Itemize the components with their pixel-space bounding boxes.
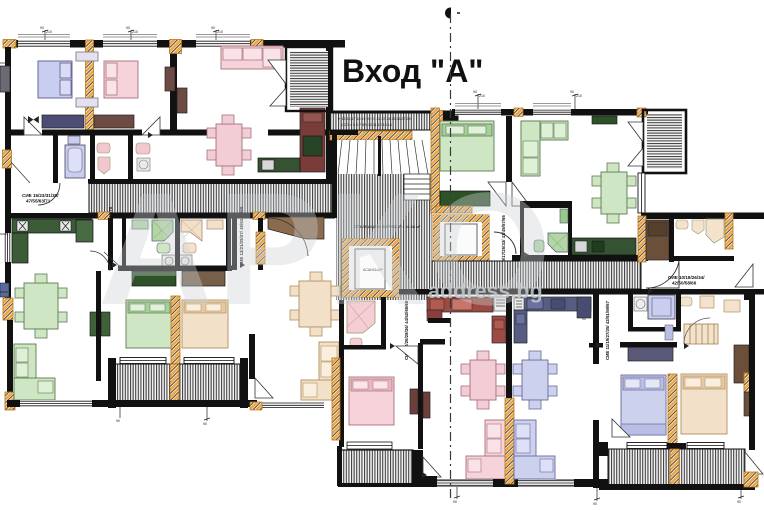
- svg-text:СИЕ 15/23/31/39/: СИЕ 15/23/31/39/: [22, 193, 59, 198]
- svg-text:90: 90: [737, 500, 741, 504]
- svg-text:address.bg: address.bg: [428, 279, 543, 303]
- svg-text:210: 210: [132, 30, 138, 34]
- svg-text:210: 210: [479, 94, 485, 98]
- svg-text:210: 210: [576, 94, 582, 98]
- svg-text:1 2 3 4 5 6 7 8 9 10 11 12 13: 1 2 3 4 5 6 7 8 9 10 11 12 13 14: [341, 123, 392, 127]
- svg-text:▼ 15 16 17 18 19 20 21 22 23 2: ▼ 15 16 17 18 19 20 21 22 23 24 25 26 27…: [337, 117, 411, 121]
- svg-text:210: 210: [217, 30, 223, 34]
- svg-text:СИЕ 10/18/26/34/: СИЕ 10/18/26/34/: [668, 275, 705, 280]
- svg-text:210: 210: [46, 30, 52, 34]
- svg-text:Вход "А": Вход "А": [342, 53, 483, 89]
- svg-text:90: 90: [593, 502, 597, 506]
- svg-text:90: 90: [211, 26, 215, 30]
- svg-text:90: 90: [203, 422, 207, 426]
- svg-text:90: 90: [116, 419, 120, 423]
- svg-text:СИЕ 11/19/27/35/ 43/51/59/67: СИЕ 11/19/27/35/ 43/51/59/67: [605, 300, 610, 360]
- svg-text:90: 90: [453, 500, 457, 504]
- svg-text:90: 90: [126, 26, 130, 30]
- svg-text:90: 90: [473, 90, 477, 94]
- svg-text:42/50/58/66: 42/50/58/66: [672, 281, 697, 286]
- svg-text:90: 90: [40, 26, 44, 30]
- svg-text:АРКО: АРКО: [98, 159, 554, 338]
- svg-text:90: 90: [570, 90, 574, 94]
